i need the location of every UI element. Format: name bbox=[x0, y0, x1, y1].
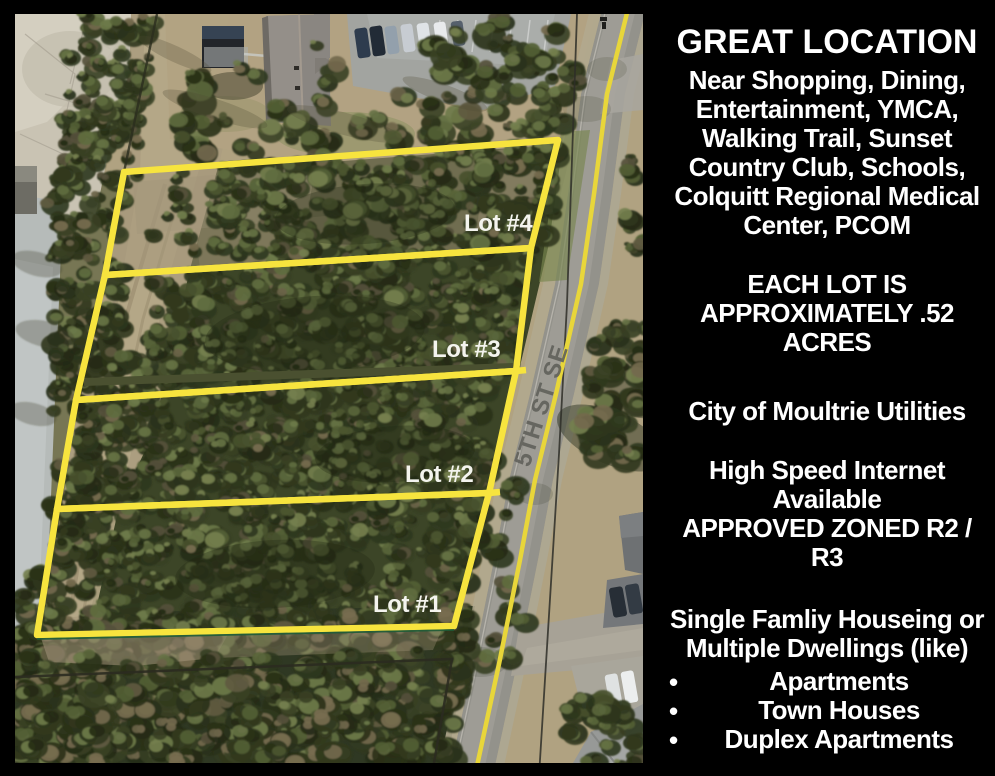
svg-text:Lot #4: Lot #4 bbox=[464, 210, 533, 237]
svg-text:Lot #3: Lot #3 bbox=[432, 336, 500, 363]
svg-text:Lot #2: Lot #2 bbox=[405, 461, 473, 488]
svg-text:Lot #1: Lot #1 bbox=[373, 591, 441, 618]
